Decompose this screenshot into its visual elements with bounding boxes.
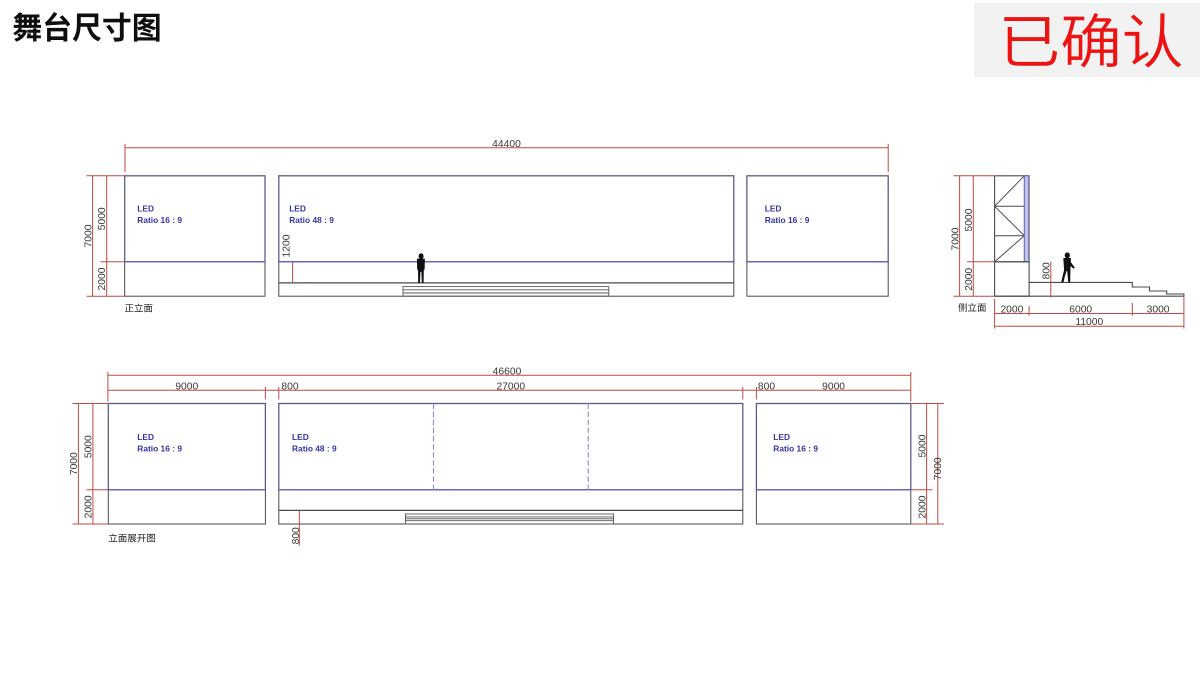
svg-text:Ratio 48 : 9: Ratio 48 : 9 — [289, 215, 334, 225]
svg-text:LED: LED — [137, 432, 154, 442]
svg-text:7000: 7000 — [933, 457, 944, 480]
svg-text:1200: 1200 — [282, 234, 293, 257]
svg-text:5000: 5000 — [97, 207, 108, 230]
svg-text:LED: LED — [773, 432, 790, 442]
svg-text:LED: LED — [765, 204, 782, 214]
svg-text:44400: 44400 — [492, 139, 521, 150]
svg-text:Ratio 16 : 9: Ratio 16 : 9 — [137, 443, 182, 453]
svg-text:46600: 46600 — [493, 367, 522, 378]
svg-text:LED: LED — [292, 432, 309, 442]
svg-text:7000: 7000 — [950, 227, 961, 250]
svg-text:27000: 27000 — [496, 381, 525, 392]
svg-text:2000: 2000 — [964, 268, 975, 291]
svg-text:7000: 7000 — [83, 224, 94, 247]
svg-text:5000: 5000 — [964, 208, 975, 231]
svg-text:LED: LED — [289, 204, 306, 214]
svg-text:11000: 11000 — [1075, 317, 1103, 328]
svg-text:800: 800 — [281, 381, 298, 392]
svg-text:LED: LED — [137, 204, 154, 214]
svg-text:5000: 5000 — [83, 435, 94, 458]
svg-text:6000: 6000 — [1069, 304, 1092, 315]
svg-text:5000: 5000 — [917, 434, 928, 457]
svg-text:2000: 2000 — [83, 495, 94, 518]
svg-text:3000: 3000 — [1147, 304, 1170, 315]
svg-text:2000: 2000 — [97, 267, 108, 290]
svg-text:2000: 2000 — [917, 495, 928, 518]
svg-text:7000: 7000 — [69, 452, 80, 475]
svg-text:Ratio 16 : 9: Ratio 16 : 9 — [773, 443, 818, 453]
svg-text:Ratio 16 : 9: Ratio 16 : 9 — [137, 215, 182, 225]
svg-text:2000: 2000 — [1000, 304, 1023, 315]
svg-text:800: 800 — [758, 381, 775, 392]
svg-text:800: 800 — [1042, 262, 1053, 279]
svg-text:800: 800 — [291, 527, 302, 544]
svg-text:Ratio 48 : 9: Ratio 48 : 9 — [292, 443, 337, 453]
svg-text:9000: 9000 — [175, 381, 198, 392]
svg-text:9000: 9000 — [822, 381, 845, 392]
svg-text:Ratio 16 : 9: Ratio 16 : 9 — [765, 215, 810, 225]
